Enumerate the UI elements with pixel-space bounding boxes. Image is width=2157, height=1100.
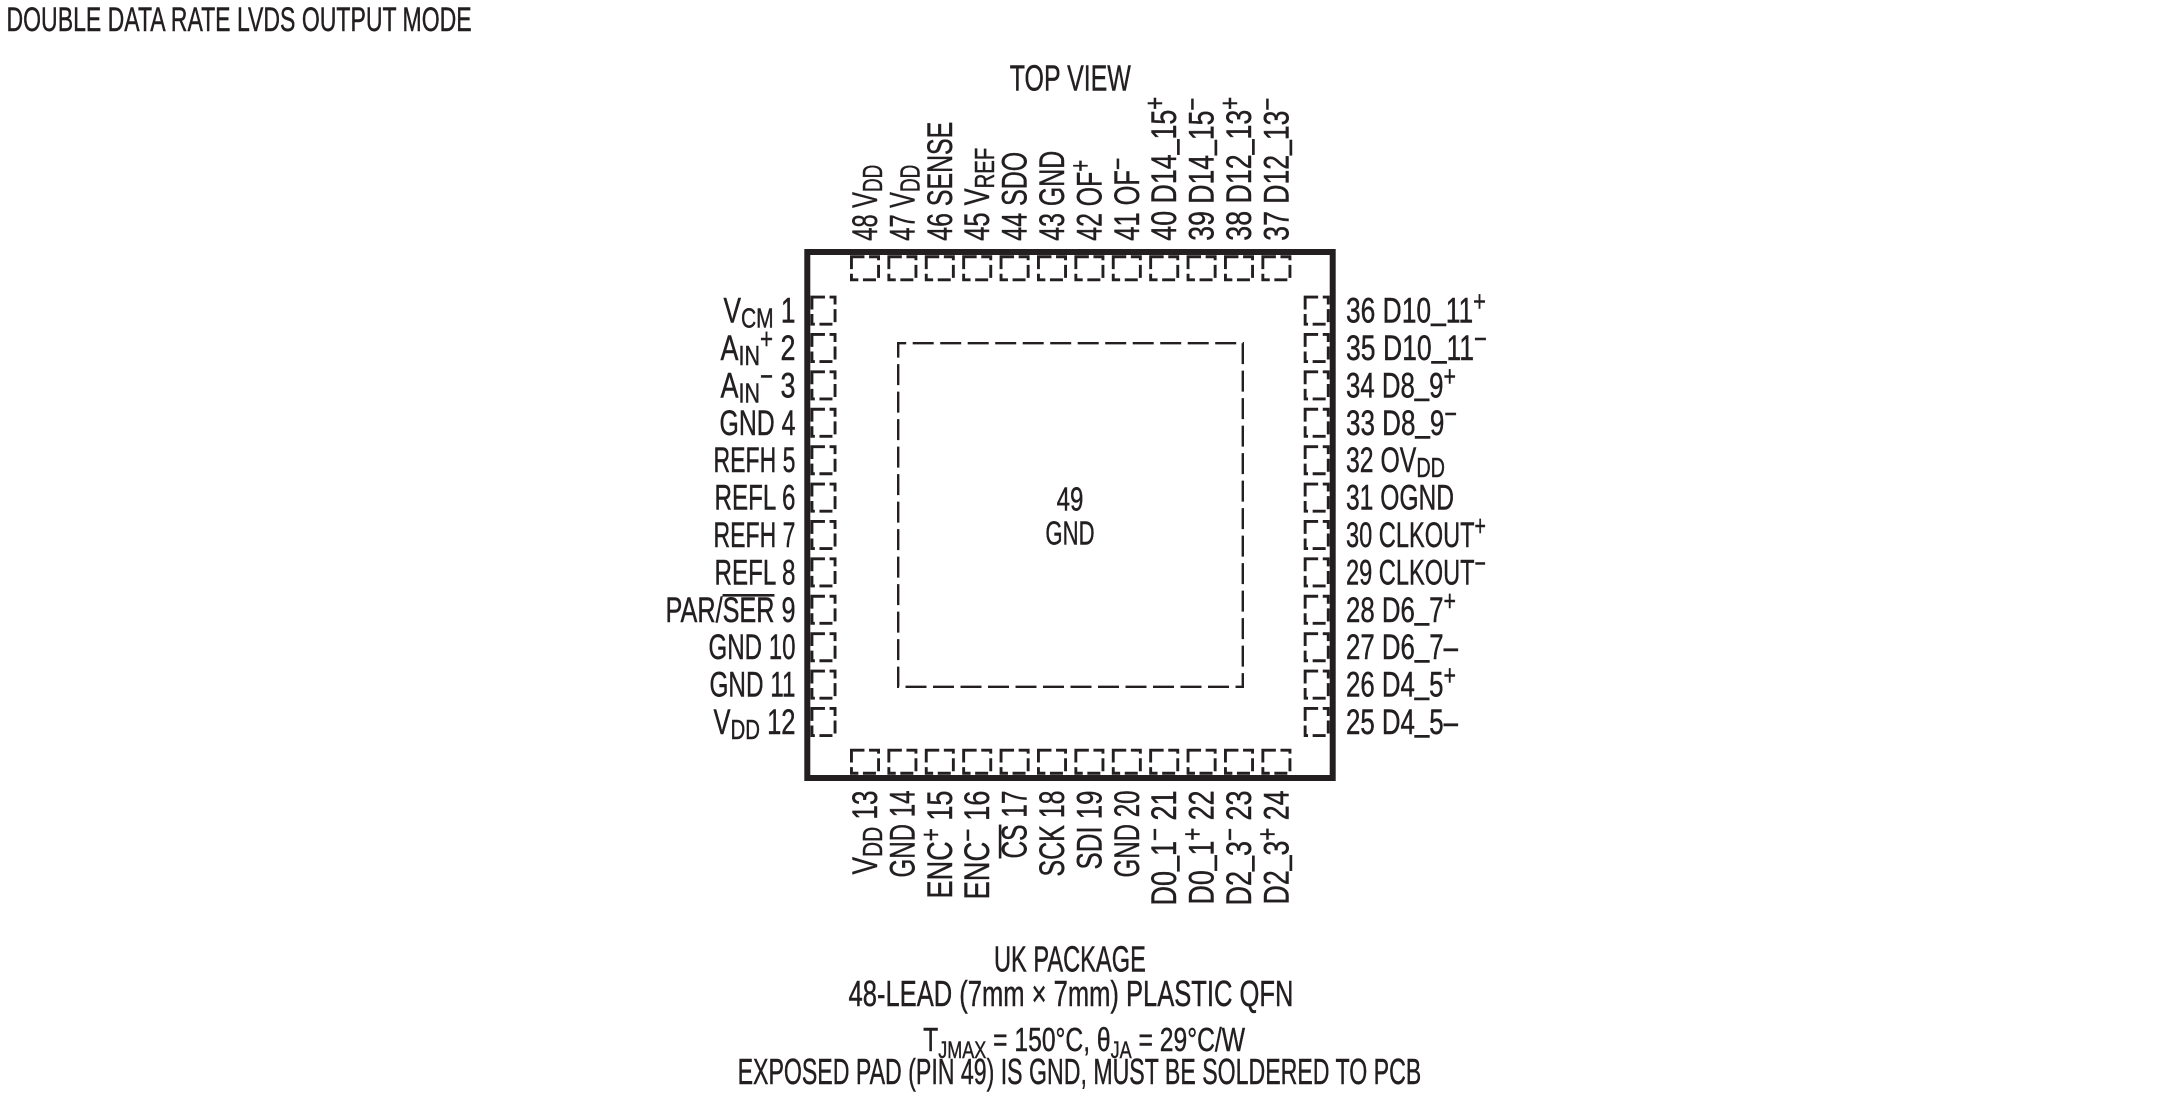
svg-text:37 D12_13−: 37 D12_13− xyxy=(1252,98,1296,241)
svg-text:31 OGND: 31 OGND xyxy=(1346,480,1454,518)
svg-text:GND: GND xyxy=(1045,515,1094,553)
svg-text:EXPOSED PAD (PIN 49) IS GND, M: EXPOSED PAD (PIN 49) IS GND, MUST BE SOL… xyxy=(738,1053,1422,1092)
svg-text:27 D6_7–: 27 D6_7– xyxy=(1346,624,1459,667)
svg-text:REFL 6: REFL 6 xyxy=(715,479,796,517)
svg-text:REFH 7: REFH 7 xyxy=(714,516,796,555)
svg-text:VDD 13: VDD 13 xyxy=(845,791,889,875)
svg-text:33 D8_9−: 33 D8_9− xyxy=(1346,398,1457,442)
svg-text:30 CLKOUT+: 30 CLKOUT+ xyxy=(1346,511,1486,555)
svg-text:D0_1− 21: D0_1− 21 xyxy=(1140,791,1184,906)
svg-text:DOUBLE DATA RATE LVDS OUTPUT M: DOUBLE DATA RATE LVDS OUTPUT MODE xyxy=(7,2,472,39)
svg-text:46 SENSE: 46 SENSE xyxy=(922,122,960,241)
svg-text:26 D4_5+: 26 D4_5+ xyxy=(1346,660,1456,705)
svg-text:ENC− 16: ENC− 16 xyxy=(951,791,997,900)
svg-text:38 D12_13+: 38 D12_13+ xyxy=(1215,97,1259,241)
svg-text:CS 17: CS 17 xyxy=(996,791,1034,859)
svg-text:SCK 18: SCK 18 xyxy=(1033,791,1072,877)
svg-text:TOP VIEW: TOP VIEW xyxy=(1010,58,1132,99)
svg-text:D2_3− 23: D2_3− 23 xyxy=(1215,791,1259,906)
svg-text:34 D8_9+: 34 D8_9+ xyxy=(1346,361,1456,406)
svg-text:40 D14_15+: 40 D14_15+ xyxy=(1140,97,1184,241)
svg-text:VDD 12: VDD 12 xyxy=(713,703,795,746)
svg-text:25 D4_5–: 25 D4_5– xyxy=(1346,699,1459,742)
svg-text:REFL 8: REFL 8 xyxy=(715,554,796,592)
svg-text:36 D10_11+: 36 D10_11+ xyxy=(1346,286,1486,330)
svg-text:REFH 5: REFH 5 xyxy=(714,441,796,480)
svg-text:GND 10: GND 10 xyxy=(709,629,796,667)
svg-text:SDI 19: SDI 19 xyxy=(1070,791,1110,870)
svg-text:39 D14_15−: 39 D14_15− xyxy=(1177,98,1221,241)
svg-text:32 OVDD: 32 OVDD xyxy=(1346,442,1445,484)
svg-text:D0_1+ 22: D0_1+ 22 xyxy=(1177,791,1221,905)
svg-text:PAR/SER 9: PAR/SER 9 xyxy=(666,591,796,630)
svg-text:GND 11: GND 11 xyxy=(710,666,796,704)
svg-text:ENC+ 15: ENC+ 15 xyxy=(916,791,960,899)
svg-text:D2_3+ 24: D2_3+ 24 xyxy=(1252,791,1296,905)
svg-text:47 VDD: 47 VDD xyxy=(884,165,926,241)
svg-text:44 SDO: 44 SDO xyxy=(996,152,1035,241)
svg-text:48-LEAD (7mm × 7mm) PLASTIC QF: 48-LEAD (7mm × 7mm) PLASTIC QFN xyxy=(849,974,1294,1014)
svg-text:GND 4: GND 4 xyxy=(720,405,796,443)
svg-text:28 D6_7+: 28 D6_7+ xyxy=(1346,585,1456,630)
svg-text:49: 49 xyxy=(1057,482,1084,519)
svg-text:41 OF−: 41 OF− xyxy=(1102,158,1147,241)
svg-text:42 OF+: 42 OF+ xyxy=(1065,160,1110,241)
svg-text:48 VDD: 48 VDD xyxy=(847,165,889,241)
